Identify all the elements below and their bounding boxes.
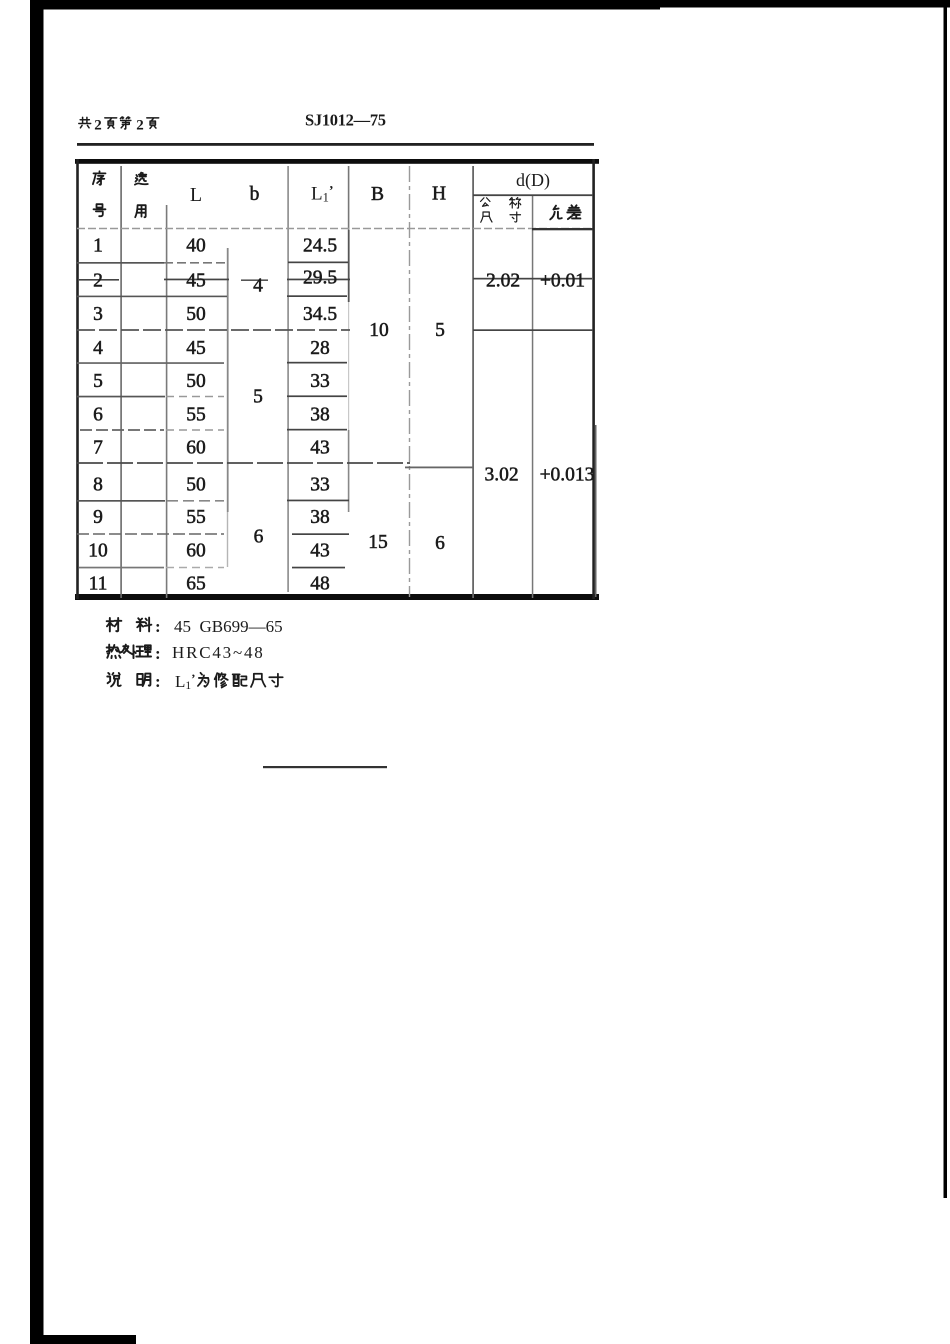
svg-text:L: L [190, 184, 202, 206]
svg-text:45: 45 [186, 338, 206, 359]
svg-text::: : [155, 644, 161, 663]
svg-text:4: 4 [253, 276, 263, 297]
svg-text:43: 43 [310, 541, 330, 562]
svg-text:28: 28 [310, 338, 330, 359]
svg-text:b: b [250, 184, 260, 205]
svg-text:55: 55 [186, 405, 206, 426]
svg-text:6: 6 [254, 527, 264, 548]
svg-text:50: 50 [186, 371, 206, 392]
svg-text:9: 9 [93, 507, 103, 528]
svg-text:38: 38 [310, 507, 330, 528]
svg-text:10: 10 [369, 320, 389, 341]
svg-text:43: 43 [310, 438, 330, 459]
svg-text:40: 40 [186, 236, 206, 257]
svg-text:33: 33 [310, 475, 330, 496]
svg-text:2.02: 2.02 [486, 271, 520, 292]
svg-text:2: 2 [93, 271, 103, 292]
svg-text:5: 5 [435, 320, 445, 341]
svg-text:6: 6 [93, 405, 103, 426]
svg-text:H: H [432, 184, 446, 205]
svg-text:8: 8 [93, 475, 103, 496]
svg-text:29.5: 29.5 [303, 268, 337, 289]
svg-text:60: 60 [186, 438, 206, 459]
svg-text:B: B [371, 184, 384, 205]
svg-text:50: 50 [186, 304, 206, 325]
svg-text:3: 3 [93, 304, 103, 325]
svg-text:15: 15 [368, 532, 388, 553]
svg-text::: : [155, 617, 161, 636]
svg-text:60: 60 [186, 541, 206, 562]
svg-text:+0.01: +0.01 [540, 271, 585, 292]
svg-text::: : [155, 672, 161, 691]
svg-text:7: 7 [93, 438, 103, 459]
svg-text:HRC43~48: HRC43~48 [172, 643, 265, 662]
svg-text:33: 33 [310, 371, 330, 392]
svg-text:1: 1 [93, 236, 103, 257]
svg-text:5: 5 [93, 371, 103, 392]
svg-text:2: 2 [136, 118, 144, 134]
svg-text:45 GB699—65: 45 GB699—65 [174, 617, 283, 636]
svg-text:5: 5 [253, 387, 263, 408]
svg-text:6: 6 [435, 533, 445, 554]
svg-text:55: 55 [186, 507, 206, 528]
svg-text:24.5: 24.5 [303, 236, 337, 257]
svg-text:11: 11 [89, 574, 108, 595]
svg-text:+0.013: +0.013 [540, 465, 595, 486]
svg-text:10: 10 [88, 541, 108, 562]
svg-text:2: 2 [94, 118, 102, 134]
svg-text:50: 50 [186, 475, 206, 496]
svg-text:48: 48 [310, 574, 330, 595]
svg-text:45: 45 [186, 271, 206, 292]
svg-text:SJ1012—75: SJ1012—75 [305, 111, 386, 130]
svg-text:38: 38 [310, 405, 330, 426]
svg-text:34.5: 34.5 [303, 304, 337, 325]
svg-text:d(D): d(D) [516, 170, 550, 191]
svg-text:3.02: 3.02 [484, 465, 518, 486]
svg-text:65: 65 [186, 574, 206, 595]
svg-text:4: 4 [93, 338, 103, 359]
